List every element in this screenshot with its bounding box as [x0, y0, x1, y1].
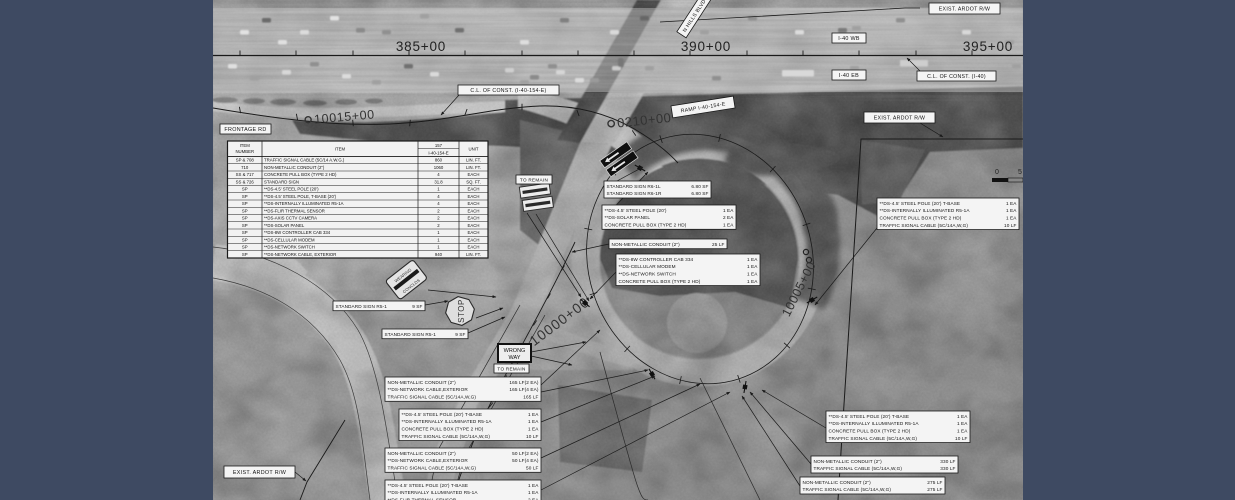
svg-text:LIN. FT.: LIN. FT.	[466, 165, 481, 170]
svg-text:1060: 1060	[434, 165, 444, 170]
svg-text:**DS-4.5' STEEL POLE (20') T-B: **DS-4.5' STEEL POLE (20') T-BASE	[388, 483, 469, 488]
svg-text:**DS-4.5' STEEL POLE (20') T-B: **DS-4.5' STEEL POLE (20') T-BASE	[402, 412, 483, 417]
svg-text:WAY: WAY	[509, 355, 521, 361]
svg-text:FRONTAGE RD: FRONTAGE RD	[224, 127, 266, 133]
svg-text:395+00: 395+00	[963, 39, 1013, 54]
svg-text:1 EA: 1 EA	[723, 208, 734, 213]
svg-text:6.80 SF: 6.80 SF	[691, 184, 708, 189]
svg-text:C.L. OF CONST. (I-40): C.L. OF CONST. (I-40)	[927, 74, 986, 80]
svg-text:EACH: EACH	[468, 230, 480, 235]
svg-text:1 EA: 1 EA	[1006, 216, 1017, 221]
svg-text:TRAFFIC SIGNAL CABLE (5C/14 A.: TRAFFIC SIGNAL CABLE (5C/14 A.W.G.)	[264, 158, 345, 163]
svg-text:330 LF: 330 LF	[940, 459, 955, 464]
svg-text:SP: SP	[242, 245, 248, 250]
svg-text:330 LF: 330 LF	[940, 466, 955, 471]
svg-text:CONCRETE PULL BOX (TYPE 2 HD): CONCRETE PULL BOX (TYPE 2 HD)	[402, 427, 484, 432]
svg-text:165 LF(4 EA): 165 LF(4 EA)	[509, 387, 538, 392]
svg-text:**DS-NETWORK SWITCH: **DS-NETWORK SWITCH	[264, 245, 315, 250]
svg-text:1 EA: 1 EA	[747, 257, 758, 262]
svg-text:I-40 WB: I-40 WB	[838, 36, 860, 42]
svg-text:1 EA: 1 EA	[528, 490, 539, 495]
svg-text:0: 0	[995, 169, 999, 176]
svg-text:10 LF: 10 LF	[955, 436, 968, 441]
svg-text:1 EA: 1 EA	[957, 414, 968, 419]
svg-text:1 EA: 1 EA	[747, 279, 758, 284]
svg-text:CONCRETE PULL BOX (TYPE 2 HD): CONCRETE PULL BOX (TYPE 2 HD)	[619, 279, 701, 284]
svg-text:SS & 717: SS & 717	[236, 172, 255, 177]
svg-text:157: 157	[435, 143, 443, 148]
svg-text:**DS-NETWORK CABLE, EXTERIOR: **DS-NETWORK CABLE, EXTERIOR	[264, 252, 336, 257]
svg-text:EACH: EACH	[468, 216, 480, 221]
svg-text:SP: SP	[242, 223, 248, 228]
svg-text:NON-METALLIC CONDUIT (2"): NON-METALLIC CONDUIT (2")	[388, 451, 457, 456]
svg-text:5: 5	[1018, 169, 1022, 176]
svg-text:**DS-INTERNALLY ILLUMINATED R5: **DS-INTERNALLY ILLUMINATED R5-1A	[388, 490, 479, 495]
svg-text:**DS-INTERNALLY ILLUMINATED R5: **DS-INTERNALLY ILLUMINATED R5-1A	[829, 421, 920, 426]
svg-text:NON-METALLIC CONDUIT (2"): NON-METALLIC CONDUIT (2")	[803, 480, 872, 485]
svg-text:1 EA: 1 EA	[747, 272, 758, 277]
svg-text:NUMBER: NUMBER	[235, 149, 254, 154]
svg-text:165 LF(2 EA): 165 LF(2 EA)	[509, 380, 538, 385]
svg-text:UNIT: UNIT	[468, 147, 478, 152]
svg-text:**DS-SOLAR PANEL: **DS-SOLAR PANEL	[605, 215, 651, 220]
svg-text:**DS-8W CONTROLLER CAB 334: **DS-8W CONTROLLER CAB 334	[619, 257, 694, 262]
svg-text:SP: SP	[242, 187, 248, 192]
svg-text:**DS-INTERNALLY ILLUMINATED R5: **DS-INTERNALLY ILLUMINATED R5-1A	[264, 201, 344, 206]
svg-text:TO REMAIN: TO REMAIN	[520, 178, 548, 183]
svg-text:ITEM: ITEM	[240, 143, 251, 148]
svg-text:**DS-FLIR THERMAL SENSOR: **DS-FLIR THERMAL SENSOR	[264, 208, 325, 213]
svg-text:**DS-4.5' STEEL POLE (20'): **DS-4.5' STEEL POLE (20')	[264, 187, 319, 192]
svg-text:EACH: EACH	[468, 172, 480, 177]
svg-text:385+00: 385+00	[396, 39, 446, 54]
svg-text:**DS-4.5' STEEL POLE (20') T-B: **DS-4.5' STEEL POLE (20') T-BASE	[829, 414, 910, 419]
svg-text:NON-METALLIC CONDUIT (2"): NON-METALLIC CONDUIT (2")	[264, 165, 325, 170]
svg-text:STANDARD SIGN: STANDARD SIGN	[264, 179, 299, 184]
svg-text:**DS-CELLULAR MODEM: **DS-CELLULAR MODEM	[619, 264, 676, 269]
svg-text:SP: SP	[242, 208, 248, 213]
svg-text:CONCRETE PULL BOX (TYPE 2 HD): CONCRETE PULL BOX (TYPE 2 HD)	[264, 172, 337, 177]
svg-text:NON-METALLIC CONDUIT (2"): NON-METALLIC CONDUIT (2")	[612, 242, 681, 247]
svg-text:CONCRETE PULL BOX (TYPE 2 HD): CONCRETE PULL BOX (TYPE 2 HD)	[605, 223, 687, 228]
svg-text:EACH: EACH	[468, 194, 480, 199]
svg-text:SP: SP	[242, 230, 248, 235]
svg-text:CONCRETE PULL BOX (TYPE 2 HD): CONCRETE PULL BOX (TYPE 2 HD)	[829, 429, 911, 434]
svg-text:SP: SP	[242, 216, 248, 221]
svg-text:EXIST. ARDOT R/W: EXIST. ARDOT R/W	[939, 7, 990, 13]
svg-text:TRAFFIC SIGNAL CABLE (5C/14A,W: TRAFFIC SIGNAL CABLE (5C/14A,W,G)	[388, 466, 477, 471]
svg-text:**DS-INTERNALLY ILLUMINATED R5: **DS-INTERNALLY ILLUMINATED R5-1A	[880, 208, 971, 213]
svg-text:TRAFFIC SIGNAL CABLE (5C/14A,W: TRAFFIC SIGNAL CABLE (5C/14A,W,G)	[829, 436, 918, 441]
svg-text:9 SF: 9 SF	[455, 332, 465, 337]
svg-text:TRAFFIC SIGNAL CABLE (5C/14A,W: TRAFFIC SIGNAL CABLE (5C/14A,W,G)	[388, 395, 477, 400]
svg-text:EACH: EACH	[468, 237, 480, 242]
svg-text:275 LF: 275 LF	[927, 480, 942, 485]
svg-text:**DS-SOLAR PANEL: **DS-SOLAR PANEL	[264, 223, 305, 228]
svg-text:LIN. FT.: LIN. FT.	[466, 252, 481, 257]
svg-text:**DS-4.5' STEEL POLE, T-BASE (: **DS-4.5' STEEL POLE, T-BASE (20')	[264, 194, 337, 199]
svg-text:SP: SP	[242, 252, 248, 257]
svg-text:**DS-8W CONTROLLER CAB 334: **DS-8W CONTROLLER CAB 334	[264, 230, 331, 235]
svg-text:SP: SP	[242, 237, 248, 242]
svg-text:LIN. FT.: LIN. FT.	[466, 158, 481, 163]
svg-text:**DS-4.5' STEEL POLE (20') T-B: **DS-4.5' STEEL POLE (20') T-BASE	[880, 201, 961, 206]
svg-text:10 LF: 10 LF	[1004, 223, 1017, 228]
svg-text:EXIST. ARDOT R/W: EXIST. ARDOT R/W	[233, 470, 287, 476]
svg-text:10 LF: 10 LF	[526, 434, 539, 439]
svg-text:SP & 708: SP & 708	[236, 158, 255, 163]
svg-text:25 LF: 25 LF	[712, 242, 725, 247]
svg-text:**DS-INTERNALLY ILLUMINATED R5: **DS-INTERNALLY ILLUMINATED R5-1A	[402, 419, 493, 424]
svg-text:9 SF: 9 SF	[412, 304, 422, 309]
svg-text:TRAFFIC SIGNAL CABLE (5C/14A,W: TRAFFIC SIGNAL CABLE (5C/14A,W,G)	[803, 487, 892, 492]
svg-text:6.80 SF: 6.80 SF	[691, 191, 708, 196]
svg-text:SP: SP	[242, 194, 248, 199]
svg-text:EACH: EACH	[468, 245, 480, 250]
svg-text:NON-METALLIC CONDUIT (2"): NON-METALLIC CONDUIT (2")	[388, 380, 457, 385]
svg-text:1 EA: 1 EA	[747, 264, 758, 269]
svg-text:SQ. FT.: SQ. FT.	[466, 179, 481, 184]
svg-text:EACH: EACH	[468, 201, 480, 206]
svg-text:STANDARD SIGN R6-1L: STANDARD SIGN R6-1L	[607, 184, 661, 189]
svg-text:**DS-4.5' STEEL POLE (20'): **DS-4.5' STEEL POLE (20')	[605, 208, 667, 213]
svg-text:50 LF(2 EA): 50 LF(2 EA)	[512, 451, 539, 456]
svg-text:TRAFFIC SIGNAL CABLE (5C/14A,W: TRAFFIC SIGNAL CABLE (5C/14A,W,G)	[880, 223, 969, 228]
svg-text:**DS-NETWORK CABLE,EXTERIOR: **DS-NETWORK CABLE,EXTERIOR	[388, 387, 469, 392]
svg-text:1 EA: 1 EA	[528, 412, 539, 417]
svg-text:1 EA: 1 EA	[957, 421, 968, 426]
svg-text:EXIST. ARDOT R/W: EXIST. ARDOT R/W	[874, 116, 925, 122]
svg-text:1 EA: 1 EA	[1006, 208, 1017, 213]
svg-text:275 LF: 275 LF	[927, 487, 942, 492]
svg-text:165 LF: 165 LF	[523, 395, 538, 400]
svg-text:1 EA: 1 EA	[723, 223, 734, 228]
svg-text:31.8: 31.8	[434, 179, 443, 184]
svg-text:I-40 EB: I-40 EB	[839, 73, 859, 79]
svg-text:TRAFFIC SIGNAL CABLE (5C/14A,W: TRAFFIC SIGNAL CABLE (5C/14A,W,G)	[402, 434, 491, 439]
svg-text:940: 940	[435, 252, 443, 257]
svg-text:50 LF(4 EA): 50 LF(4 EA)	[512, 458, 539, 463]
svg-text:EACH: EACH	[468, 187, 480, 192]
svg-text:1 EA: 1 EA	[1006, 201, 1017, 206]
svg-text:TRAFFIC SIGNAL CABLE (5C/14A,W: TRAFFIC SIGNAL CABLE (5C/14A,W,G)	[814, 466, 903, 471]
svg-text:I-40-154-E: I-40-154-E	[428, 151, 448, 156]
svg-text:STANDARD SIGN R5-1: STANDARD SIGN R5-1	[336, 304, 388, 309]
svg-text:**DS-NETWORK SWITCH: **DS-NETWORK SWITCH	[619, 272, 676, 277]
svg-text:1 EA: 1 EA	[957, 429, 968, 434]
svg-text:1 EA: 1 EA	[528, 419, 539, 424]
svg-text:390+00: 390+00	[681, 39, 731, 54]
svg-text:EACH: EACH	[468, 208, 480, 213]
svg-text:2 EA: 2 EA	[723, 215, 734, 220]
svg-text:710: 710	[241, 165, 249, 170]
svg-text:SS & 726: SS & 726	[236, 179, 255, 184]
svg-text:C.L. OF CONST. (I-40-154-E): C.L. OF CONST. (I-40-154-E)	[470, 88, 546, 94]
svg-text:**DS-CELLULAR MODEM: **DS-CELLULAR MODEM	[264, 237, 315, 242]
svg-text:EACH: EACH	[468, 223, 480, 228]
svg-text:CONCRETE PULL BOX (TYPE 2 HD): CONCRETE PULL BOX (TYPE 2 HD)	[880, 216, 962, 221]
svg-text:SP: SP	[242, 201, 248, 206]
svg-text:**DS-AXIS CCTV CAMERA: **DS-AXIS CCTV CAMERA	[264, 216, 317, 221]
svg-text:860: 860	[435, 158, 443, 163]
svg-text:STOP: STOP	[457, 299, 466, 323]
svg-text:ITEM: ITEM	[335, 147, 346, 152]
svg-text:50 LF: 50 LF	[526, 466, 539, 471]
svg-text:**DS-NETWORK CABLE,EXTERIOR: **DS-NETWORK CABLE,EXTERIOR	[388, 458, 469, 463]
svg-text:NON-METALLIC CONDUIT (2"): NON-METALLIC CONDUIT (2")	[814, 459, 883, 464]
svg-text:STANDARD SIGN R6-1R: STANDARD SIGN R6-1R	[607, 191, 662, 196]
svg-text:TO REMAIN: TO REMAIN	[497, 367, 525, 372]
svg-text:1 EA: 1 EA	[528, 427, 539, 432]
svg-text:WRONG: WRONG	[504, 348, 526, 354]
svg-text:STANDARD SIGN R5-1: STANDARD SIGN R5-1	[385, 332, 437, 337]
svg-text:1 EA: 1 EA	[528, 483, 539, 488]
